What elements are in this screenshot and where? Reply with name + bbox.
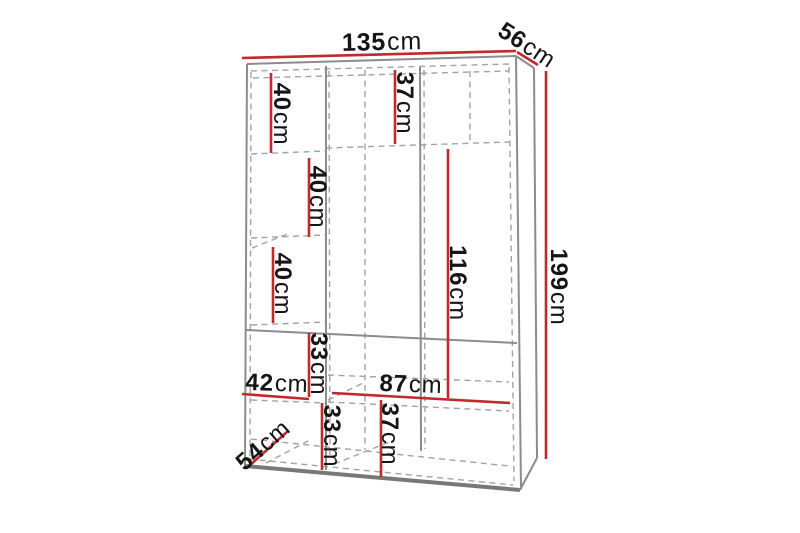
wardrobe-dimension-diagram: 135cm 56cm 199cm 40cm 37cm 40cm 40cm 116… — [0, 0, 800, 533]
dim-label-bottom-left: 33cm — [319, 405, 346, 468]
dim-label-left-shelf-3: 40cm — [270, 253, 297, 316]
dim-label-mid-compartment: 33cm — [306, 333, 333, 396]
dim-label-left-width: 42cm — [245, 368, 309, 397]
dim-label-right-width: 87cm — [379, 369, 443, 398]
dim-label-left-shelf-2: 40cm — [305, 166, 332, 229]
dim-label-top-shelf: 37cm — [392, 72, 419, 135]
dim-label-height: 199cm — [546, 248, 573, 325]
diagram-canvas: 135cm 56cm 199cm 40cm 37cm 40cm 40cm 116… — [0, 0, 800, 533]
left-divider-back-edge — [329, 71, 330, 455]
dim-label-hanging-height: 116cm — [445, 245, 472, 321]
dim-label-bottom-middle: 37cm — [377, 403, 404, 466]
dim-label-width: 135cm — [342, 27, 423, 57]
dim-label-left-shelf-1: 40cm — [269, 83, 296, 146]
